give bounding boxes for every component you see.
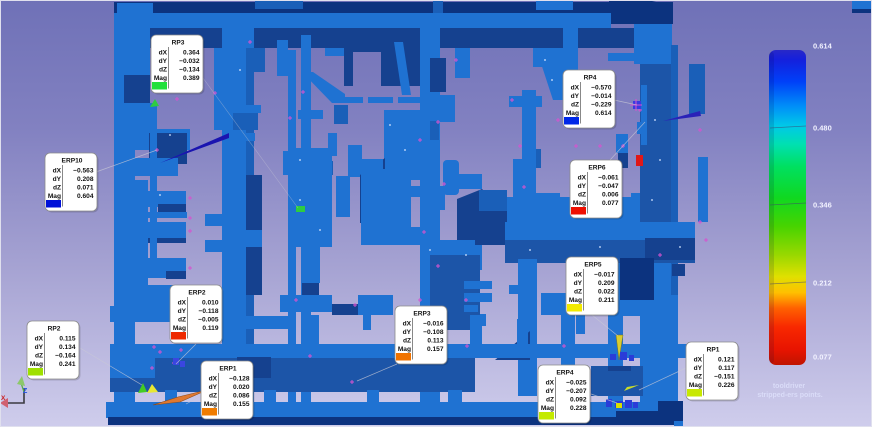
- svg-text:Mag: Mag: [566, 110, 579, 117]
- svg-text:stripped-ers points.: stripped-ers points.: [757, 392, 822, 399]
- svg-text:ERP10: ERP10: [62, 158, 83, 165]
- svg-text:Mag: Mag: [569, 297, 582, 304]
- svg-text:dZ: dZ: [571, 102, 579, 109]
- svg-text:−0.017: −0.017: [594, 272, 615, 279]
- svg-text:dY: dY: [209, 384, 218, 391]
- svg-text:dX: dX: [53, 168, 62, 175]
- svg-text:−0.134: −0.134: [179, 67, 200, 74]
- svg-text:−0.108: −0.108: [423, 329, 444, 336]
- svg-text:0.077: 0.077: [813, 353, 832, 362]
- svg-text:ERP5: ERP5: [584, 262, 602, 269]
- svg-text:dY: dY: [403, 329, 412, 336]
- svg-text:0.614: 0.614: [813, 42, 833, 51]
- svg-text:0.115: 0.115: [59, 336, 75, 343]
- svg-text:dY: dY: [694, 365, 703, 372]
- svg-text:ERP6: ERP6: [588, 165, 606, 172]
- svg-text:dY: dY: [35, 344, 44, 351]
- svg-text:dY: dY: [178, 308, 187, 315]
- svg-text:−0.570: −0.570: [591, 85, 612, 92]
- svg-text:dZ: dZ: [53, 185, 61, 192]
- svg-text:dX: dX: [578, 175, 587, 182]
- svg-text:0.086: 0.086: [233, 393, 250, 400]
- svg-text:Mag: Mag: [204, 401, 217, 408]
- svg-text:0.480: 0.480: [813, 124, 832, 133]
- svg-text:−0.032: −0.032: [179, 58, 200, 65]
- svg-text:dX: dX: [574, 272, 583, 279]
- svg-text:dX: dX: [159, 50, 168, 57]
- svg-text:−0.563: −0.563: [73, 168, 94, 175]
- svg-text:−0.164: −0.164: [55, 353, 76, 360]
- svg-text:Mag: Mag: [173, 325, 186, 332]
- svg-text:X: X: [1, 395, 6, 402]
- svg-text:0.119: 0.119: [202, 325, 218, 332]
- svg-text:−0.061: −0.061: [598, 175, 619, 182]
- svg-text:Mag: Mag: [398, 346, 411, 353]
- svg-text:0.157: 0.157: [427, 346, 444, 353]
- svg-text:Mag: Mag: [689, 382, 702, 389]
- svg-text:0.077: 0.077: [602, 200, 619, 207]
- svg-text:RP1: RP1: [707, 347, 720, 354]
- svg-text:dZ: dZ: [578, 192, 586, 199]
- svg-text:0.071: 0.071: [77, 185, 94, 192]
- svg-text:dY: dY: [53, 176, 62, 183]
- svg-text:0.241: 0.241: [59, 361, 76, 368]
- svg-text:dX: dX: [178, 300, 187, 307]
- svg-text:−0.047: −0.047: [598, 183, 619, 190]
- svg-text:dZ: dZ: [159, 67, 167, 74]
- svg-text:Mag: Mag: [30, 361, 43, 368]
- svg-text:dY: dY: [159, 58, 168, 65]
- svg-text:dZ: dZ: [546, 397, 554, 404]
- svg-text:0.022: 0.022: [598, 289, 615, 296]
- svg-text:dZ: dZ: [35, 353, 43, 360]
- svg-text:Z: Z: [23, 388, 28, 395]
- svg-text:0.092: 0.092: [570, 397, 587, 404]
- svg-text:tooldriver: tooldriver: [773, 383, 806, 390]
- svg-text:0.208: 0.208: [77, 176, 94, 183]
- svg-text:−0.005: −0.005: [198, 317, 219, 324]
- svg-text:dX: dX: [35, 336, 44, 343]
- svg-text:0.389: 0.389: [183, 75, 200, 82]
- svg-text:0.010: 0.010: [202, 300, 219, 307]
- svg-text:−0.207: −0.207: [566, 388, 587, 395]
- svg-text:−0.016: −0.016: [423, 321, 444, 328]
- svg-text:Mag: Mag: [48, 193, 61, 200]
- svg-text:RP4: RP4: [584, 75, 597, 82]
- svg-text:dZ: dZ: [209, 393, 217, 400]
- svg-text:0.212: 0.212: [813, 279, 832, 288]
- svg-text:0.155: 0.155: [233, 401, 250, 408]
- svg-text:0.117: 0.117: [718, 365, 734, 372]
- svg-text:0.604: 0.604: [77, 193, 94, 200]
- svg-text:0.364: 0.364: [183, 50, 200, 57]
- svg-text:0.346: 0.346: [813, 201, 832, 210]
- svg-text:−0.025: −0.025: [566, 380, 587, 387]
- svg-text:dZ: dZ: [403, 338, 411, 345]
- svg-text:0.228: 0.228: [570, 405, 587, 412]
- svg-text:dY: dY: [546, 388, 555, 395]
- svg-text:−0.118: −0.118: [199, 308, 219, 315]
- svg-text:dX: dX: [694, 357, 703, 364]
- svg-text:dX: dX: [209, 376, 218, 383]
- svg-text:RP2: RP2: [48, 326, 61, 333]
- svg-text:0.614: 0.614: [595, 110, 612, 117]
- svg-text:0.113: 0.113: [427, 338, 443, 345]
- svg-text:Mag: Mag: [154, 75, 167, 82]
- svg-text:0.121: 0.121: [718, 357, 735, 364]
- svg-text:0.006: 0.006: [602, 192, 619, 199]
- svg-text:ERP2: ERP2: [188, 290, 206, 297]
- svg-text:ERP3: ERP3: [413, 311, 431, 318]
- svg-text:Mag: Mag: [573, 200, 586, 207]
- svg-text:0.020: 0.020: [233, 384, 250, 391]
- svg-text:−0.229: −0.229: [591, 102, 612, 109]
- svg-text:dY: dY: [574, 280, 583, 287]
- svg-text:dY: dY: [571, 93, 580, 100]
- svg-text:0.134: 0.134: [59, 344, 76, 351]
- svg-text:−0.014: −0.014: [591, 93, 612, 100]
- svg-text:dZ: dZ: [574, 289, 582, 296]
- svg-text:Mag: Mag: [541, 405, 554, 412]
- svg-text:0.209: 0.209: [598, 280, 615, 287]
- svg-text:dY: dY: [578, 183, 587, 190]
- svg-text:dX: dX: [403, 321, 412, 328]
- svg-text:ERP1: ERP1: [219, 366, 237, 373]
- svg-text:dZ: dZ: [694, 374, 702, 381]
- svg-text:0.211: 0.211: [598, 297, 614, 304]
- svg-text:0.226: 0.226: [718, 382, 735, 389]
- svg-text:dZ: dZ: [178, 317, 186, 324]
- svg-text:RP3: RP3: [172, 40, 185, 47]
- svg-text:−0.128: −0.128: [229, 376, 250, 383]
- svg-text:dX: dX: [546, 380, 555, 387]
- svg-text:−0.151: −0.151: [714, 374, 735, 381]
- svg-text:dX: dX: [571, 85, 580, 92]
- svg-text:ERP4: ERP4: [556, 370, 574, 377]
